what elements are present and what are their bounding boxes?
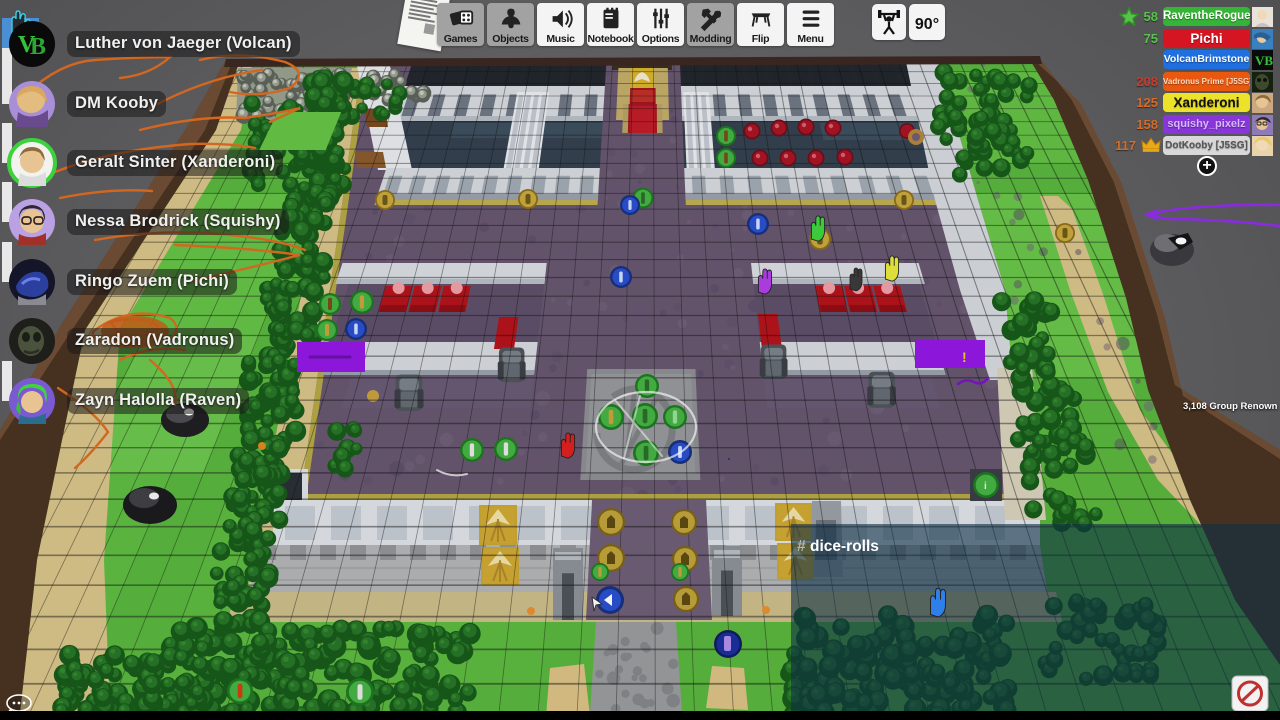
svg-text:dice-rolls: dice-rolls	[810, 538, 879, 555]
svg-text:VB: VB	[1255, 53, 1273, 68]
svg-text:#: #	[797, 538, 806, 555]
